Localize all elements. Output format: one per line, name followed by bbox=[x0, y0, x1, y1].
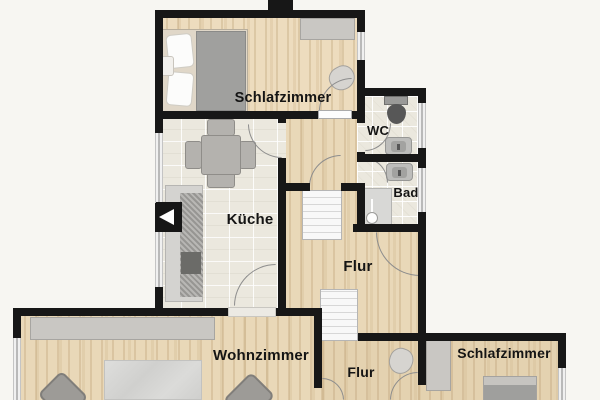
dining-table bbox=[201, 135, 241, 175]
sink-faucet bbox=[397, 144, 400, 150]
wall bbox=[357, 154, 426, 162]
window bbox=[558, 368, 566, 400]
dining-chair bbox=[185, 141, 202, 169]
room-label-bedroom-top: Schlafzimmer bbox=[215, 90, 351, 106]
staircase-upper bbox=[302, 190, 342, 240]
sideboard bbox=[30, 317, 215, 340]
wc-sink bbox=[385, 137, 412, 155]
entrance-marker bbox=[156, 202, 182, 232]
window bbox=[418, 103, 426, 148]
bath-sink bbox=[386, 163, 413, 181]
wall bbox=[353, 224, 426, 232]
dining-chair bbox=[207, 119, 235, 136]
wall bbox=[13, 308, 21, 338]
window bbox=[13, 338, 21, 400]
floor-plan: Schlafzimmer WC Bad Küche Flur Wohnzimme… bbox=[0, 0, 600, 400]
door-leaf-bedroom-top bbox=[318, 110, 352, 119]
room-label-bath: Bad bbox=[384, 185, 428, 200]
shower-head bbox=[366, 212, 378, 224]
passage-threshold bbox=[228, 307, 276, 317]
wall bbox=[13, 308, 228, 316]
staircase-lower bbox=[320, 289, 358, 341]
kitchen-countertop bbox=[180, 193, 203, 297]
room-label-hall-bottom: Flur bbox=[329, 364, 393, 380]
room-label-living-room: Wohnzimmer bbox=[204, 347, 318, 364]
room-label-wc: WC bbox=[360, 123, 396, 138]
sink-faucet bbox=[398, 170, 401, 176]
room-label-bedroom-bottom: Schlafzimmer bbox=[440, 345, 568, 361]
window bbox=[155, 133, 163, 203]
entrance-arrow-icon bbox=[159, 209, 174, 225]
dining-chair bbox=[239, 141, 256, 169]
stove bbox=[181, 252, 201, 274]
wall bbox=[357, 88, 426, 96]
wall bbox=[286, 183, 310, 191]
wall bbox=[357, 96, 365, 123]
window bbox=[155, 232, 163, 287]
wall bbox=[278, 111, 286, 123]
room-label-kitchen: Küche bbox=[209, 211, 291, 228]
wall bbox=[155, 10, 365, 18]
pillow bbox=[166, 71, 195, 107]
wall bbox=[276, 308, 322, 316]
wardrobe bbox=[300, 18, 355, 40]
wall bbox=[341, 183, 357, 191]
rug bbox=[104, 360, 202, 400]
chimney bbox=[268, 0, 293, 10]
room-label-hall-mid: Flur bbox=[326, 258, 390, 275]
wall bbox=[358, 333, 566, 341]
wall bbox=[278, 158, 286, 310]
window bbox=[357, 32, 365, 60]
wall bbox=[155, 111, 318, 119]
bed-blanket bbox=[484, 385, 536, 400]
